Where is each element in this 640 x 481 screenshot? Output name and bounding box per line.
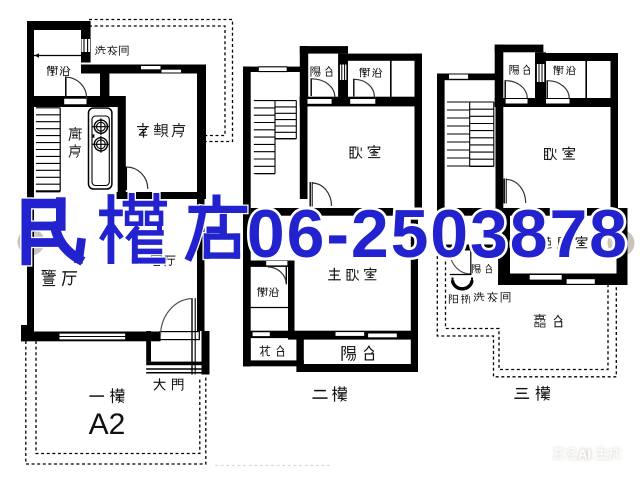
svg-text:AI: AI bbox=[578, 447, 591, 462]
svg-text:06-2503878: 06-2503878 bbox=[247, 196, 629, 272]
svg-text:A2: A2 bbox=[89, 408, 126, 441]
